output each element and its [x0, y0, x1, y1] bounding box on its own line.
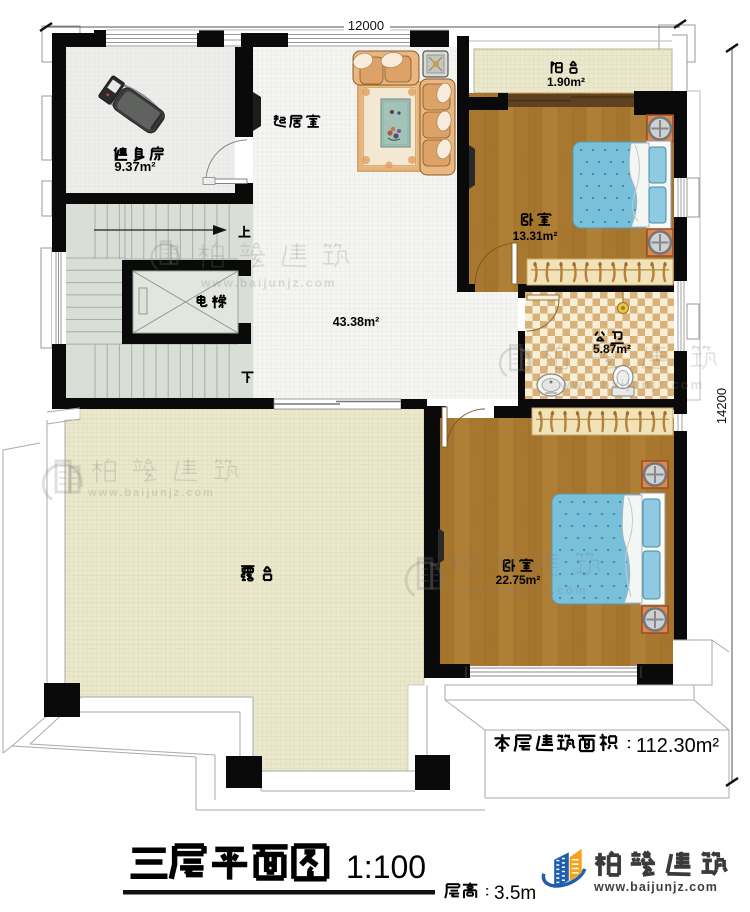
- svg-text:13.31m²: 13.31m²: [513, 229, 558, 243]
- svg-text:14200: 14200: [714, 388, 729, 424]
- svg-text:www.baijunjz.com: www.baijunjz.com: [200, 276, 337, 290]
- svg-text:43.38m²: 43.38m²: [333, 315, 380, 329]
- svg-text:www.baijunjz.com: www.baijunjz.com: [87, 487, 215, 499]
- svg-text:112.30m²: 112.30m²: [636, 735, 719, 757]
- svg-text:1:100: 1:100: [346, 849, 426, 885]
- svg-text:www.baijunjz.com: www.baijunjz.com: [559, 377, 704, 392]
- svg-text:www.baijunjz.com: www.baijunjz.com: [593, 880, 718, 894]
- svg-text:3.5m: 3.5m: [494, 883, 536, 904]
- svg-text:www.baijunjz.com: www.baijunjz.com: [451, 583, 588, 597]
- svg-text:1.90m²: 1.90m²: [547, 75, 585, 89]
- svg-text:9.37m²: 9.37m²: [114, 159, 156, 174]
- svg-text:12000: 12000: [348, 18, 384, 33]
